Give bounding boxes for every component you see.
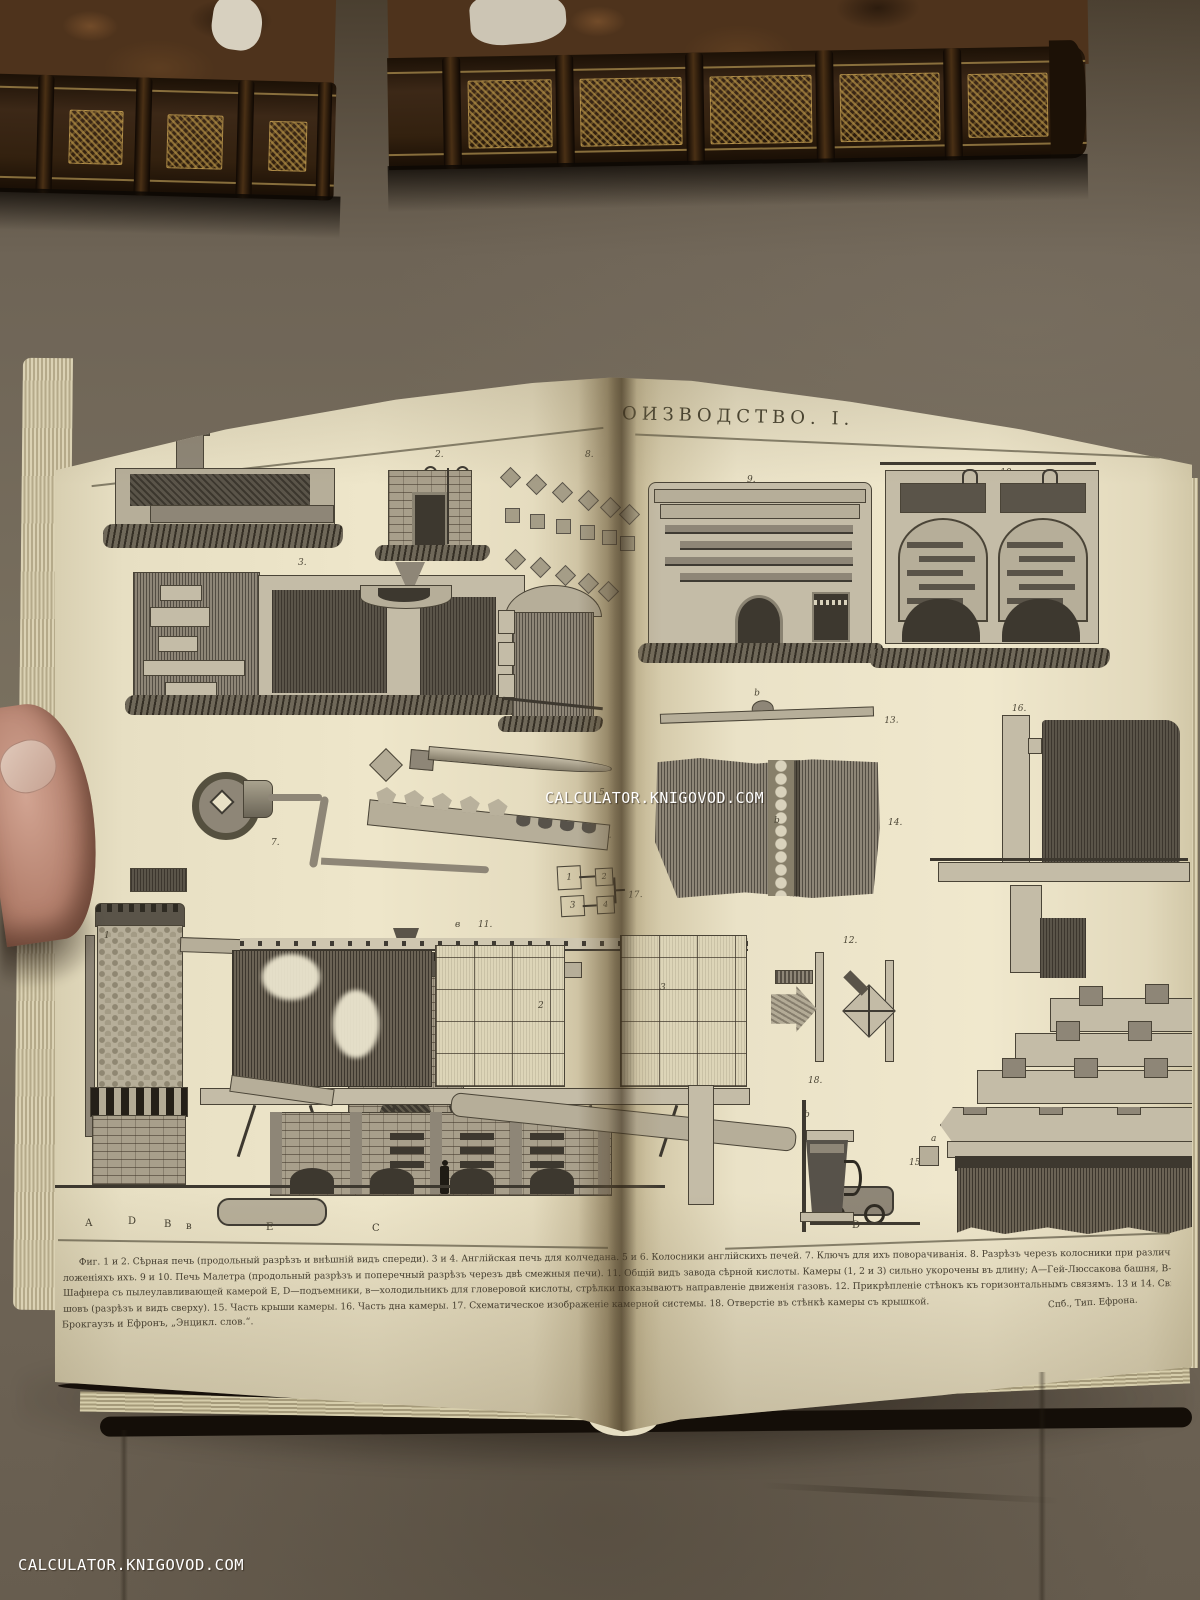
thumbnail <box>0 732 64 801</box>
gilt-ornament <box>467 79 552 148</box>
gilt-ornament <box>579 77 682 147</box>
gilt-ornament <box>68 110 123 165</box>
watermark-center: CALCULATOR.KNIGOVOD.COM <box>545 789 764 807</box>
gilt-ornament <box>967 73 1048 138</box>
book-right-spine <box>387 46 1087 170</box>
book-left-spine <box>0 73 336 200</box>
gilt-ornament <box>839 72 940 142</box>
gilt-ornament <box>268 121 307 172</box>
stacked-antique-books <box>0 0 1200 260</box>
open-plate-spread: КАМЕРНОЕ ОИЗВОДСТВО. I. 1. 2. 8. <box>55 330 1192 1435</box>
watermark-bottom-left: CALCULATOR.KNIGOVOD.COM <box>18 1556 244 1574</box>
gilt-ornament <box>166 114 223 169</box>
gilt-ornament <box>709 75 812 145</box>
photo-of-open-encyclopedia: КАМЕРНОЕ ОИЗВОДСТВО. I. 1. 2. 8. <box>0 0 1200 1600</box>
book-gutter-shadow <box>578 330 662 1435</box>
